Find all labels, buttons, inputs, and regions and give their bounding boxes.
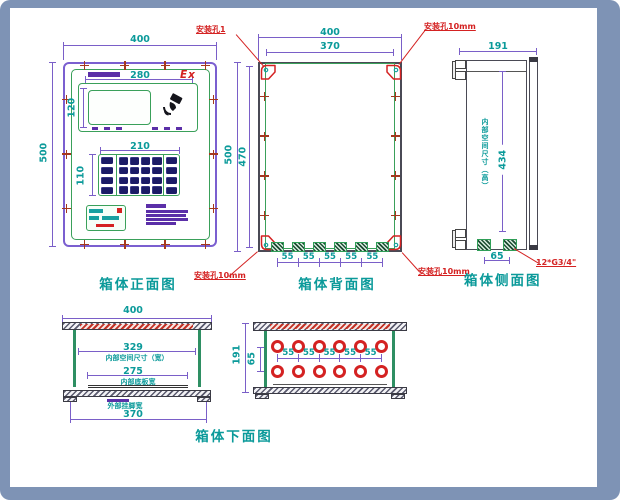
keypad-key: [166, 157, 177, 164]
mounting-hole-label-tl: 安装孔1: [196, 26, 226, 34]
keypad-key: [119, 177, 128, 185]
dim-line: [63, 45, 217, 46]
extension-line: [258, 39, 259, 60]
nameplate: [86, 205, 126, 231]
door-hinge-cap: [529, 57, 538, 62]
keypad-key: [130, 186, 139, 194]
screw-cross-icon: [209, 150, 218, 159]
keypad-key: [101, 157, 113, 164]
front-view-title: 箱体正面图: [72, 279, 204, 293]
cable-gland: [334, 242, 347, 252]
dim-line: [277, 262, 383, 263]
keypad-key: [166, 167, 177, 174]
back-inner-outline: [265, 63, 395, 249]
mounting-hole-label-bl: 安装孔10mm: [194, 272, 246, 280]
back-height-outer-dim: 500: [224, 140, 234, 170]
nameplate-text-block: [102, 216, 119, 220]
mounting-ear: [455, 60, 466, 69]
mounting-hole-label-tr: 安装孔10mm: [424, 23, 476, 31]
certification-text-line: [146, 218, 188, 221]
side-gland-spacing-dim: 65: [487, 252, 507, 262]
nameplate-text-block: [96, 224, 114, 227]
keypad-key: [101, 167, 113, 174]
screw-cross-icon: [391, 171, 400, 180]
keypad-height-dim: 110: [76, 161, 86, 191]
back-screws-right: [391, 92, 400, 220]
gland-spec-label: 12*G3/4": [536, 259, 576, 267]
extension-line: [206, 402, 207, 418]
screw-cross-icon: [209, 204, 218, 213]
screw-cross-icon: [260, 211, 269, 220]
side-inner-height-label: 内部空间尺寸（高）: [480, 118, 490, 190]
back-height-inner-dim: 470: [238, 142, 248, 172]
front-screws-bottom: [80, 240, 210, 249]
extension-line: [63, 47, 64, 60]
bottom-plate: [88, 385, 188, 388]
keypad-key: [130, 157, 139, 165]
screw-cross-icon: [80, 61, 89, 70]
certification-text-line: [146, 214, 186, 217]
dim-line: [70, 419, 207, 420]
dim-line: [52, 62, 53, 247]
screw-cross-icon: [161, 61, 170, 70]
mounting-foot: [63, 397, 77, 402]
back-width-outer-dim: 400: [308, 28, 352, 38]
screw-cross-icon: [209, 95, 218, 104]
keypad-left-column: [101, 157, 113, 194]
nameplate-logo: [117, 208, 122, 213]
keypad-key: [152, 157, 161, 165]
keypad-key: [152, 167, 161, 175]
keypad-key: [130, 177, 139, 185]
cable-gland: [376, 242, 389, 252]
mounting-foot: [255, 394, 269, 399]
lcd-screen: [88, 90, 151, 125]
dim-line: [92, 154, 93, 196]
panel-key-mark: [116, 127, 122, 130]
mounting-foot: [197, 397, 211, 402]
section-top-bar-gasket: [80, 324, 193, 329]
dim-line: [83, 88, 84, 128]
screw-cross-icon: [80, 240, 89, 249]
mounting-ear: [455, 229, 466, 238]
gland-hole: [375, 365, 388, 378]
keypad-key: [141, 167, 150, 175]
screw-cross-icon: [201, 61, 210, 70]
nameplate-text-block: [89, 209, 103, 213]
keypad-key: [141, 157, 150, 165]
dim-line: [260, 347, 261, 372]
dim-line: [78, 351, 196, 352]
keypad-key: [141, 186, 150, 194]
keypad-divider: [163, 155, 164, 195]
panel-key-mark: [104, 127, 110, 130]
certification-text-line: [146, 210, 188, 213]
cable-gland: [355, 242, 368, 252]
screw-cross-icon: [391, 211, 400, 220]
dim-line: [87, 375, 188, 376]
mounting-hole-label-br: 安装孔10mm: [418, 268, 470, 276]
display-width-dim: 280: [123, 71, 157, 81]
cable-gland: [477, 239, 491, 251]
panel-key-mark: [92, 127, 98, 130]
screw-cross-icon: [391, 92, 400, 101]
bottom-view-title: 箱体下面图: [182, 431, 286, 445]
section-side-wall: [198, 330, 201, 387]
section-side-wall: [73, 330, 76, 387]
panel-key-marks-left: [92, 127, 122, 130]
back-screws-left: [260, 92, 269, 220]
gland-hole: [313, 365, 326, 378]
panel-model-text-block: [88, 72, 120, 77]
keypad-key: [119, 186, 128, 194]
bottom-side-wall: [392, 331, 395, 388]
section-width-dim: 400: [119, 306, 147, 316]
keypad-key: [141, 177, 150, 185]
drawing-canvas: 400 500 280 Ex 120 210 110 箱体正面图: [0, 0, 620, 500]
screw-cross-icon: [120, 61, 129, 70]
side-width-dim: 191: [482, 42, 514, 52]
front-screws-right: [209, 95, 218, 213]
keypad-width-dim: 210: [126, 142, 154, 152]
bottom-row-gap-dim: 65: [247, 344, 257, 374]
gland-hole: [354, 365, 367, 378]
panel-key-mark: [176, 127, 182, 130]
dim-line: [266, 52, 394, 53]
screw-cross-icon: [391, 132, 400, 141]
panel-key-mark: [164, 127, 170, 130]
screw-cross-icon: [62, 204, 71, 213]
dim-line: [249, 66, 250, 248]
keypad-key: [101, 187, 113, 194]
mounting-ear: [455, 71, 466, 80]
keypad-key: [152, 177, 161, 185]
dim-line: [277, 358, 382, 359]
door-hinge-cap: [529, 245, 538, 250]
cable-gland: [271, 242, 284, 252]
bottom-height-dim: 191: [232, 340, 242, 370]
screw-cross-icon: [62, 150, 71, 159]
screw-cross-icon: [260, 92, 269, 101]
side-door-edge: [529, 57, 538, 250]
keypad-key: [166, 187, 177, 194]
side-inner-height-dim: 434: [498, 145, 508, 175]
section-bottom-bar: [63, 390, 211, 397]
display-height-dim: 120: [67, 93, 77, 123]
keypad-key: [101, 177, 113, 184]
screw-cross-icon: [260, 171, 269, 180]
certification-text-line: [146, 204, 166, 208]
bottom-holes-row2: [271, 365, 388, 378]
gland-hole: [271, 365, 284, 378]
cable-gland: [313, 242, 326, 252]
card-swipe-icon: [158, 92, 186, 120]
mounting-ear: [455, 240, 466, 250]
front-width-dim: 400: [118, 35, 162, 45]
keypad-key: [166, 177, 177, 184]
gland-hole: [292, 365, 305, 378]
screw-cross-icon: [161, 240, 170, 249]
cable-gland: [292, 242, 305, 252]
keypad-number-grid: [119, 157, 162, 194]
screw-cross-icon: [201, 240, 210, 249]
keypad-key: [119, 167, 128, 175]
side-view-title: 箱体侧面图: [464, 275, 540, 289]
nameplate-text-block: [89, 216, 99, 220]
inner-bottom-line: [273, 384, 387, 385]
mounting-foot: [391, 394, 405, 399]
front-height-dim: 500: [39, 138, 49, 168]
back-width-inner-dim: 370: [308, 42, 352, 52]
bottom-bottom-bar: [253, 387, 407, 394]
extension-line: [401, 39, 402, 60]
extension-line: [70, 402, 71, 418]
back-cable-glands: [271, 242, 389, 252]
inner-top-line: [467, 71, 526, 72]
mounting-bracket-icon: [385, 63, 403, 81]
bottom-top-bar-gasket: [270, 324, 390, 330]
keypad-key: [152, 186, 161, 194]
extension-line: [216, 47, 217, 60]
screw-cross-icon: [260, 132, 269, 141]
panel-key-mark: [152, 127, 158, 130]
keypad-key: [130, 167, 139, 175]
back-view-title: 箱体背面图: [271, 279, 403, 293]
keypad-divider: [116, 155, 117, 195]
certification-text-line: [146, 222, 176, 225]
bottom-side-wall: [264, 331, 267, 388]
dim-line: [62, 318, 212, 319]
keypad-right-column: [166, 157, 177, 194]
panel-key-marks-right: [152, 127, 182, 130]
gland-hole: [333, 365, 346, 378]
keypad-key: [119, 157, 128, 165]
ex-marking: Ex: [180, 70, 196, 81]
screw-cross-icon: [120, 240, 129, 249]
section-inner-width-label: 内部空间尺寸（宽）: [77, 355, 197, 362]
